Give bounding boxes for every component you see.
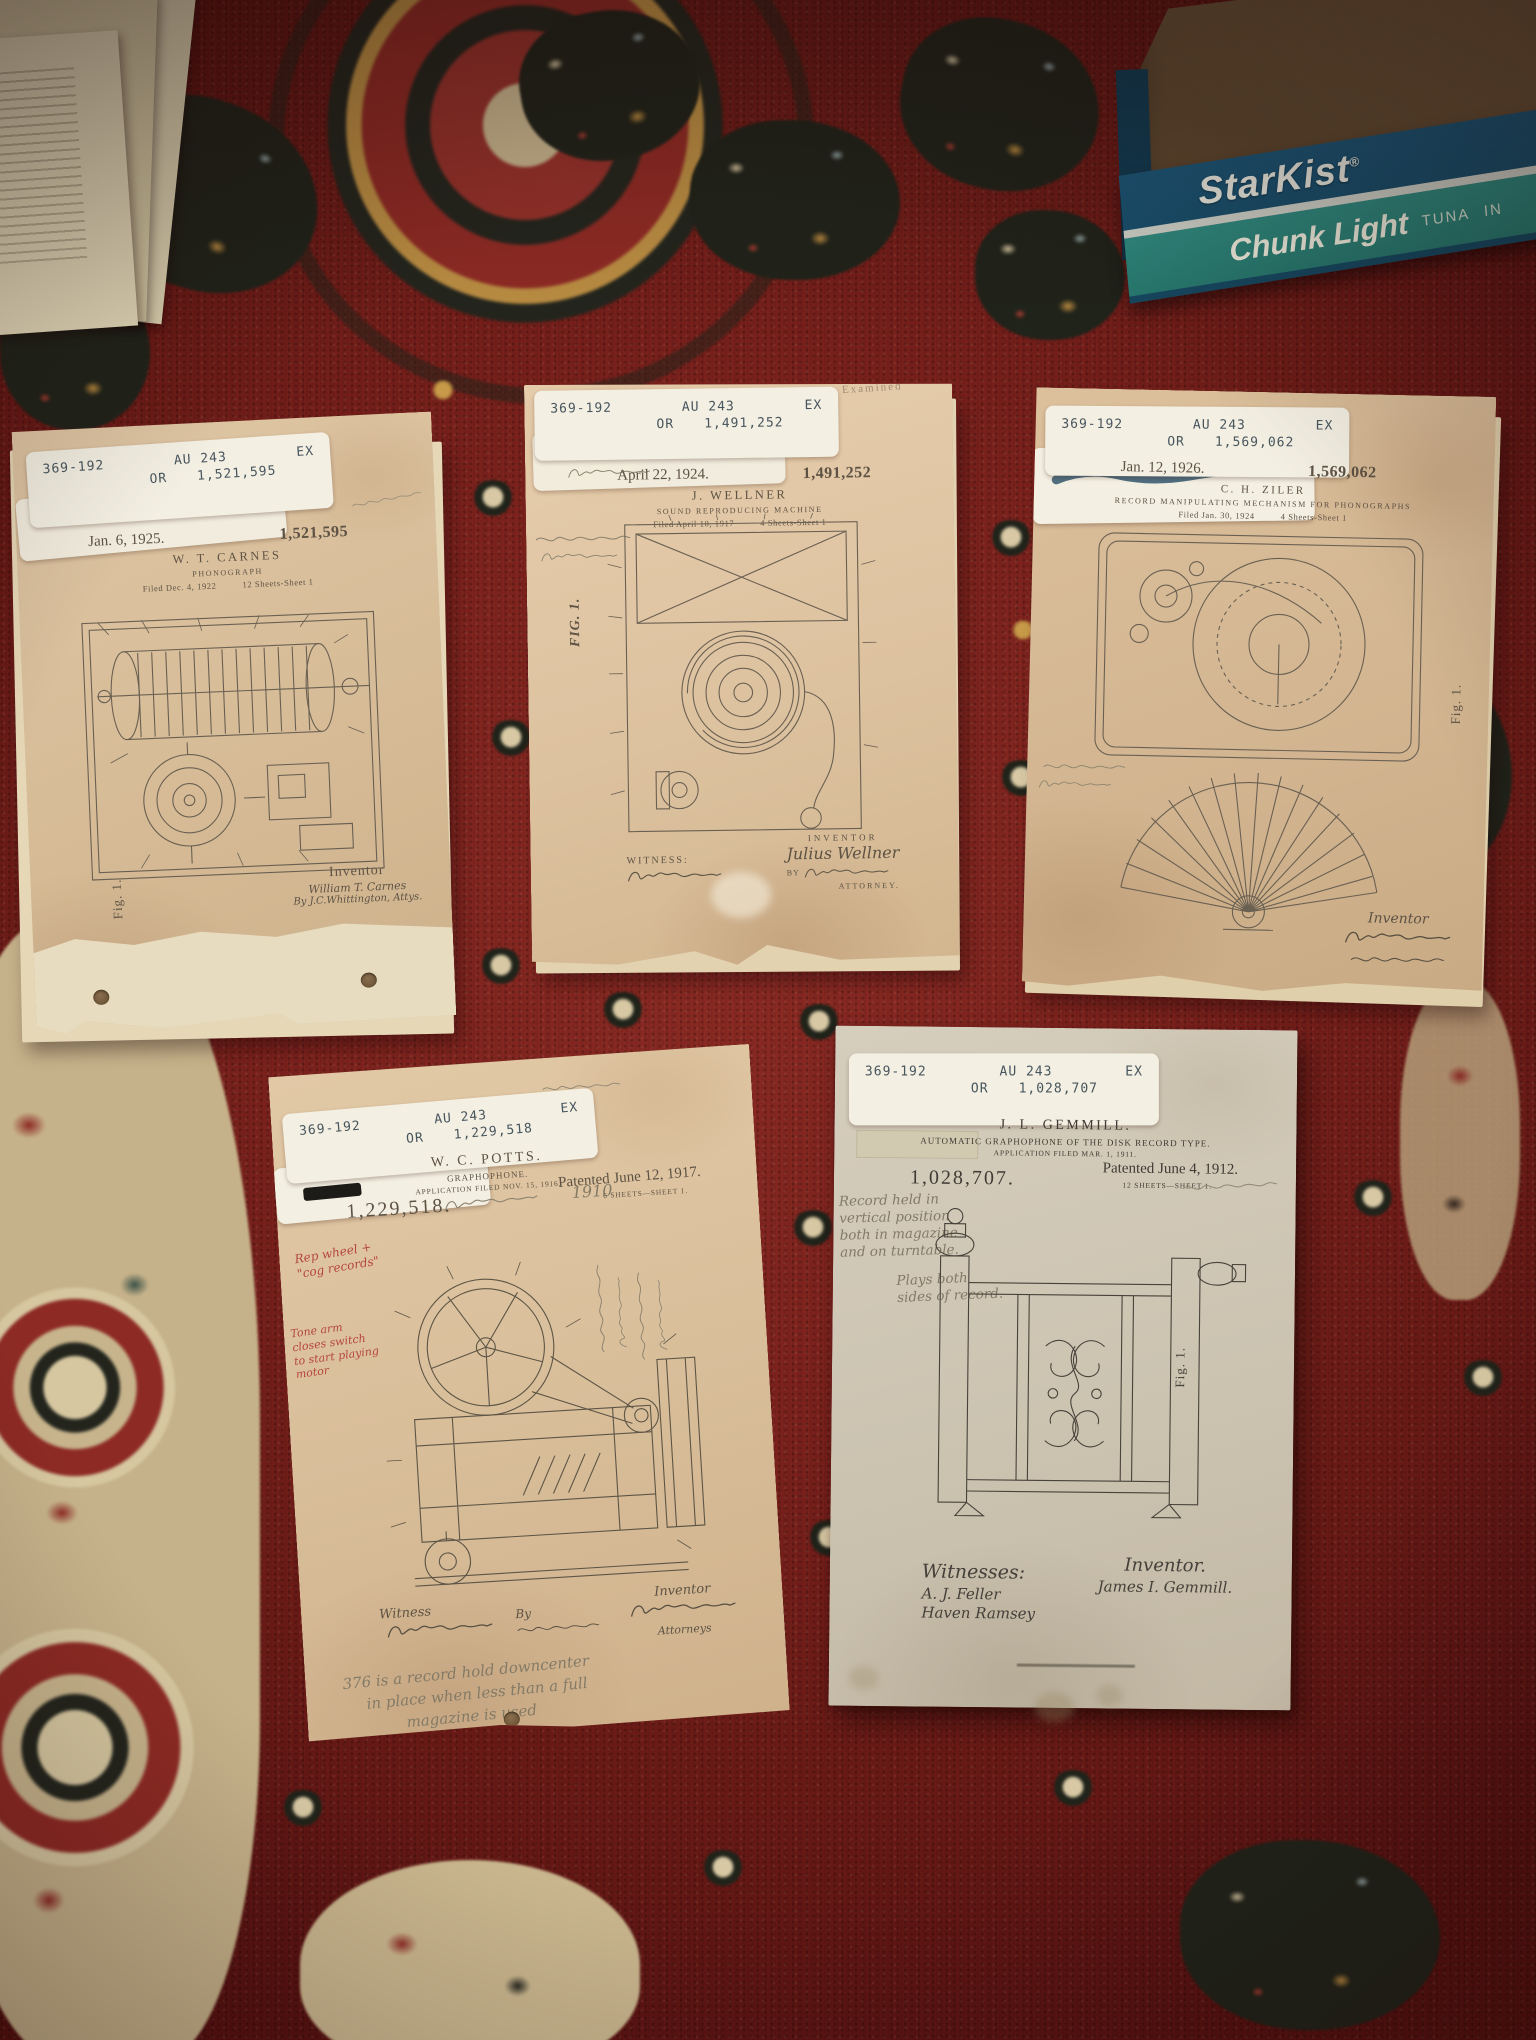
paper-stain [849, 1666, 879, 1690]
flower-motif [988, 520, 1034, 558]
label-number: 1,491,252 [704, 415, 784, 431]
patent-drawing-record-mechanism [1063, 522, 1452, 950]
flower-motif [1460, 1360, 1506, 1398]
label-class-code: 369-192 [550, 401, 612, 417]
flower-motif [790, 1210, 836, 1248]
inventor-signature: Julius Wellner [786, 843, 899, 865]
patent-date: Jan. 6, 1925. [88, 531, 165, 552]
attorney-signature-squiggle [1349, 951, 1445, 967]
paper-stack-sheet [0, 30, 138, 338]
patent-filed: Filed Jan. 30, 1924 [1178, 509, 1255, 521]
label-au: AU 243 [999, 1064, 1052, 1079]
patent-sheet: 6 SHEETS—SHEET 1. [603, 1186, 688, 1200]
witness-block: Witness [379, 1600, 501, 1647]
litho-credit-line [1017, 1664, 1135, 1668]
attorney-label: ATTORNEY. [787, 881, 900, 893]
patent-inventor: J. WELLNER [525, 485, 953, 506]
library-label: 369-192AU 243EX OR1,028,707 [849, 1053, 1159, 1125]
patent-date: April 22, 1924. [617, 466, 709, 485]
flower-motif [488, 720, 534, 758]
library-label: 369-192AU 243EX OR1,521,595 [25, 432, 333, 529]
paper-stain [1096, 1684, 1122, 1706]
pencil-bottom-note: 376 is a record hold downcenter in place… [342, 1651, 595, 1740]
patent-number: 1,028,707. [910, 1166, 1015, 1190]
label-or: OR [149, 471, 168, 487]
patent-sheet: 12 Sheets-Sheet 1 [242, 577, 313, 590]
patent-sheet: 4 Sheets-Sheet 1 [1281, 511, 1347, 522]
tuna-box: StarKist® Chunk Light TUNA IN [1112, 0, 1536, 304]
registered-mark: ® [1349, 153, 1361, 170]
patent-drawing-phonograph [47, 591, 421, 896]
label-class-code: 369-192 [865, 1064, 927, 1079]
label-or: OR [1167, 434, 1185, 449]
flower-motif [280, 1790, 326, 1828]
patent-number: 1,229,518. [346, 1194, 452, 1223]
punch-hole [93, 989, 110, 1005]
patent-drawing-sound-machine [576, 512, 911, 847]
inventor-signature-squiggle [1338, 927, 1458, 948]
attorneys-label: Attorneys [620, 1619, 749, 1641]
patent-inventor: J. L. GEMMILL. [834, 1116, 1296, 1137]
examined-stamp: Examined [842, 380, 903, 398]
patent-drawing-disk-graphophone [892, 1202, 1256, 1566]
flower-motif [478, 948, 524, 986]
product-sub-text: TUNA [1421, 205, 1471, 230]
flower-motif [470, 480, 516, 518]
patent-drawing-graphophone [328, 1242, 748, 1606]
inventor-signature-block: Inventor [1310, 909, 1485, 974]
label-ex: EX [296, 444, 315, 460]
patent-document-carnes: 369-192AU 243EX OR1,521,595 Jan. 6, 1925… [11, 411, 456, 1038]
label-or: OR [406, 1130, 425, 1146]
label-or: OR [656, 417, 674, 432]
rug-motif [975, 210, 1125, 340]
patent-document-wellner: 369-192AU 243EX OR1,491,252 Examined Apr… [524, 379, 960, 970]
patent-number: 1,491,252 [803, 464, 872, 483]
inventor-block: Inventor Attorneys [618, 1579, 749, 1640]
witness-signature: A. J. Feller [922, 1584, 1036, 1604]
patent-number: 1,569,062 [1308, 463, 1377, 482]
inventor-label: Inventor. [1098, 1554, 1233, 1578]
witnesses-label: Witnesses: [922, 1561, 1036, 1586]
witness-signature: Haven Ramsey [921, 1603, 1035, 1623]
flower-motif [1050, 1770, 1096, 1808]
witness-block: WITNESS: [627, 854, 723, 890]
rug-cream-blob [1400, 980, 1520, 1300]
label-ex: EX [1125, 1064, 1143, 1079]
figure-label: Fig. 1. [1172, 1347, 1188, 1388]
flower-motif [1350, 1180, 1396, 1218]
punch-hole [503, 1711, 520, 1727]
label-ex: EX [1316, 418, 1334, 433]
figure-label: Fig. 1. [109, 878, 127, 919]
label-ex: EX [560, 1100, 579, 1116]
label-number: 1,569,062 [1215, 435, 1295, 451]
inventor-signature-block: Inventor William T. Carnes By J.C.Whitti… [292, 860, 423, 909]
punch-hole [360, 972, 377, 988]
label-number: 1,028,707 [1019, 1081, 1098, 1096]
inventor-signature-block: Inventor. James I. Gemmill. [1098, 1554, 1233, 1597]
patent-document-gemmill: 369-192AU 243EX OR1,028,707 J. L. GEMMIL… [828, 1026, 1297, 1711]
photo-scene: StarKist® Chunk Light TUNA IN 369-192AU … [0, 0, 1536, 2040]
witness-signature-squiggle [627, 867, 723, 884]
flower-motif [700, 1850, 746, 1888]
label-au: AU 243 [1193, 418, 1246, 433]
figure-label: FIG. 1. [568, 598, 585, 648]
flower-motif [600, 992, 646, 1030]
witnesses-block: Witnesses: A. J. Feller Haven Ramsey [921, 1561, 1035, 1623]
patent-number: 1,521,595 [279, 523, 348, 544]
product-sub2-text: IN [1483, 200, 1503, 220]
paper-stain [1034, 1692, 1074, 1722]
label-ex: EX [804, 398, 822, 413]
label-number: 1,521,595 [197, 463, 277, 483]
patent-document-ziler: 369-192AU 243EX OR1,569,062 Jan. 12, 192… [1022, 387, 1496, 997]
label-class-code: 369-192 [1061, 417, 1123, 432]
inventor-signature: James I. Gemmill. [1098, 1577, 1233, 1597]
label-au: AU 243 [682, 399, 735, 415]
typed-text-lines [0, 67, 88, 271]
inventor-signature-block: INVENTOR Julius Wellner BY ATTORNEY. [786, 832, 900, 893]
patent-date: Jan. 12, 1926. [1120, 459, 1204, 479]
pencil-annotation [350, 487, 423, 512]
pencil-annotation [541, 1078, 622, 1096]
figure-label: Fig. 1. [1448, 684, 1465, 725]
by-label: BY [787, 868, 800, 878]
attorney-block: By [515, 1602, 601, 1642]
patent-header: Jan. 12, 1926.1,569,062 C. H. ZILER RECO… [1032, 457, 1495, 526]
rug-motif [1180, 1840, 1440, 2030]
rug-cream-blob [300, 1860, 640, 2040]
patent-header: J. L. GEMMILL. AUTOMATIC GRAPHOPHONE OF … [834, 1116, 1296, 1161]
patent-patented-date: Patented June 4, 1912. [1103, 1160, 1239, 1178]
rug-motif [690, 120, 900, 280]
pencil-annotation [1180, 1178, 1280, 1195]
patent-document-potts: 369-192AU 243EX OR1,229,518 1910 W. C. P… [268, 1044, 790, 1744]
paper-stain [711, 872, 772, 919]
rug-motif [885, 1, 1116, 209]
attorney-signature-squiggle [804, 863, 890, 882]
label-or: OR [971, 1081, 989, 1096]
gold-fleck [430, 380, 456, 400]
patent-filed: Filed Dec. 4, 1922 [143, 581, 217, 594]
library-label: 369-192AU 243EX OR1,491,252 [534, 387, 839, 461]
